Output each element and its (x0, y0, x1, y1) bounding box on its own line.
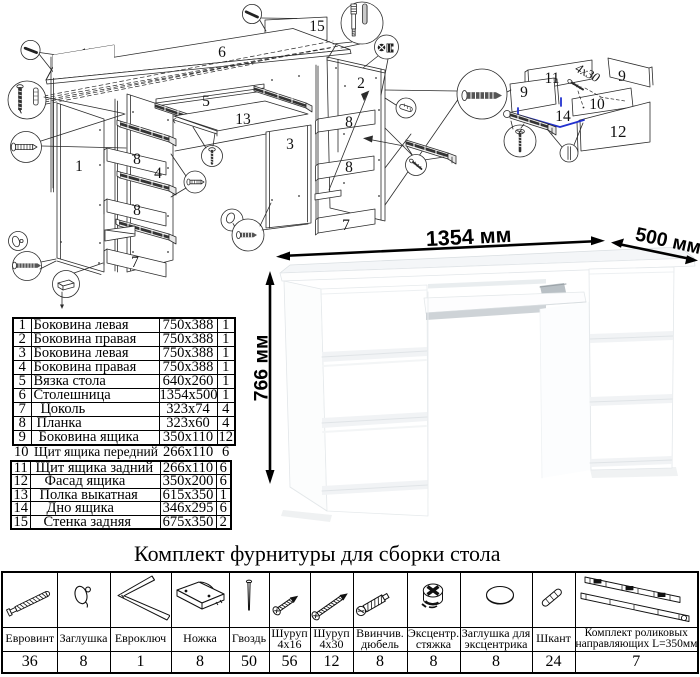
svg-text:8: 8 (133, 151, 141, 168)
svg-text:9: 9 (520, 84, 528, 101)
svg-text:8: 8 (345, 159, 353, 176)
svg-text:15: 15 (309, 18, 325, 35)
svg-text:9: 9 (618, 68, 626, 85)
svg-text:7: 7 (131, 254, 139, 271)
svg-text:8: 8 (345, 114, 353, 131)
svg-text:7: 7 (342, 217, 350, 234)
svg-text:5: 5 (202, 93, 210, 110)
svg-text:13: 13 (235, 111, 251, 128)
svg-text:3: 3 (286, 136, 294, 153)
svg-text:1354 мм: 1354 мм (425, 223, 512, 251)
svg-text:10: 10 (589, 96, 605, 113)
svg-text:11: 11 (545, 70, 560, 87)
svg-text:12: 12 (610, 122, 627, 141)
svg-text:8: 8 (133, 202, 141, 219)
svg-text:14: 14 (555, 108, 571, 125)
svg-text:2: 2 (357, 75, 365, 92)
svg-text:1: 1 (75, 158, 83, 175)
svg-text:4: 4 (154, 165, 162, 182)
svg-text:6: 6 (218, 44, 226, 61)
svg-text:766 мм: 766 мм (251, 335, 273, 402)
